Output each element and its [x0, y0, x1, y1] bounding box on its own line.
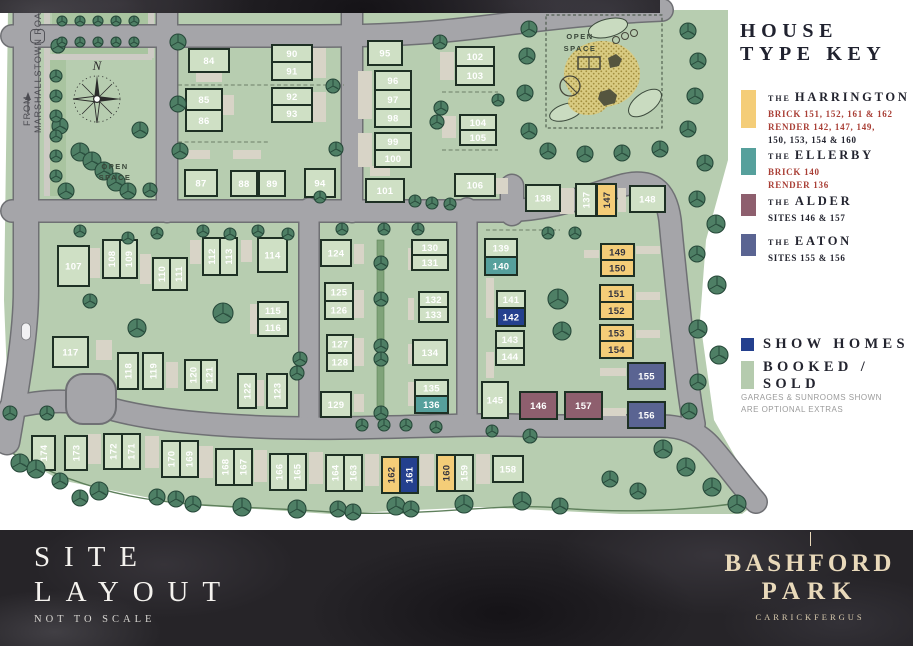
plot-155: 155	[628, 363, 665, 389]
top-texture-bar	[0, 0, 660, 13]
svg-text:168: 168	[220, 459, 231, 476]
tree-icon	[129, 37, 139, 47]
tree-icon	[172, 143, 188, 159]
svg-text:164: 164	[330, 464, 341, 481]
plot-132: 132	[419, 292, 448, 307]
tree-icon	[40, 406, 54, 420]
tree-icon	[517, 85, 533, 101]
svg-text:161: 161	[404, 466, 415, 483]
plot-143: 143	[496, 331, 524, 348]
legend-entry-harrington: THEHARRINGTONBRICK 151, 152, 161 & 162RE…	[741, 88, 910, 145]
plot-163: 163	[344, 455, 362, 491]
tree-icon	[185, 496, 201, 512]
svg-text:94: 94	[314, 178, 326, 189]
tree-icon	[90, 482, 108, 500]
tree-icon	[697, 155, 713, 171]
plot-114: 114	[258, 238, 287, 272]
legend-show-homes: SHOW HOMES	[741, 336, 909, 353]
plot-102: 102	[456, 47, 494, 66]
tree-icon	[690, 53, 706, 69]
tree-icon	[74, 225, 86, 237]
svg-text:141: 141	[503, 295, 520, 306]
plot-96: 96	[375, 71, 411, 90]
tree-icon	[521, 123, 537, 139]
svg-text:149: 149	[609, 247, 626, 258]
plot-107: 107	[58, 246, 89, 286]
road-island-marking	[22, 323, 31, 340]
footer: SITE LAYOUT NOT TO SCALE BASHFORD PARK C…	[0, 530, 913, 646]
svg-text:136: 136	[423, 400, 440, 411]
svg-text:172: 172	[108, 443, 119, 460]
tree-icon	[387, 497, 405, 515]
tree-icon	[374, 256, 388, 270]
plot-127: 127	[327, 335, 353, 353]
open-space-right-label: OPEN	[566, 32, 593, 41]
tree-icon	[681, 403, 697, 419]
tree-icon	[374, 339, 388, 353]
tree-icon	[378, 419, 390, 431]
plot-110: 110	[153, 258, 170, 290]
tree-icon	[708, 276, 726, 294]
tree-icon	[128, 319, 146, 337]
plot-167: 167	[234, 449, 252, 485]
svg-text:163: 163	[348, 465, 359, 482]
plot-120: 120	[185, 360, 201, 390]
svg-text:131: 131	[422, 258, 439, 269]
svg-text:159: 159	[459, 465, 470, 482]
svg-text:86: 86	[198, 116, 209, 127]
plot-172: 172	[104, 434, 122, 469]
plot-130: 130	[412, 240, 448, 255]
plot-108: 108	[103, 240, 120, 278]
svg-text:120: 120	[188, 367, 199, 384]
svg-text:87: 87	[195, 178, 206, 189]
plot-88: 88	[231, 171, 257, 196]
alder-swatch	[741, 194, 756, 216]
svg-text:104: 104	[470, 118, 487, 129]
plot-149: 149	[601, 244, 634, 260]
tree-icon	[654, 440, 672, 458]
tree-icon	[288, 500, 306, 518]
plot-125: 125	[325, 283, 353, 301]
plot-162: 162	[382, 457, 400, 493]
tree-icon	[492, 94, 504, 106]
tree-icon	[129, 16, 139, 26]
svg-text:117: 117	[62, 347, 78, 358]
house-type-key-panel: HOUSE TYPE KEY THEHARRINGTONBRICK 151, 1…	[728, 0, 913, 530]
svg-text:134: 134	[422, 348, 439, 359]
plot-161: 161	[400, 457, 418, 493]
tree-icon	[72, 490, 88, 506]
plot-113: 113	[220, 238, 237, 275]
svg-text:128: 128	[332, 357, 349, 368]
plot-106: 106	[455, 174, 495, 196]
svg-text:139: 139	[493, 243, 510, 254]
site-layout-page: 8485868788899091929394959697989910010110…	[0, 0, 913, 646]
plot-92: 92	[272, 88, 312, 105]
svg-text:142: 142	[503, 312, 520, 323]
plot-171: 171	[122, 434, 140, 469]
show-homes-swatch	[741, 338, 754, 351]
plot-123: 123	[267, 374, 287, 408]
tree-icon	[50, 110, 62, 122]
not-to-scale-label: NOT TO SCALE	[34, 614, 234, 625]
svg-text:116: 116	[265, 323, 281, 334]
svg-text:138: 138	[535, 193, 552, 204]
plot-101: 101	[366, 179, 404, 202]
tree-icon	[602, 471, 618, 487]
plot-86: 86	[186, 110, 222, 131]
svg-text:92: 92	[286, 92, 297, 103]
svg-text:147: 147	[602, 192, 613, 209]
plot-93: 93	[272, 105, 312, 122]
plot-153: 153	[600, 325, 633, 341]
plot-109: 109	[120, 240, 137, 278]
tree-icon	[374, 292, 388, 306]
svg-text:125: 125	[331, 287, 348, 298]
tree-icon	[444, 198, 456, 210]
svg-text:167: 167	[238, 459, 249, 476]
house-type-name: THEELLERBY	[768, 146, 874, 164]
plot-157: 157	[565, 392, 602, 419]
tree-icon	[569, 227, 581, 239]
plot-145: 145	[482, 382, 508, 418]
open-space-left-label2: SPACE	[99, 173, 132, 182]
svg-text:119: 119	[148, 363, 159, 379]
brand-name-2: PARK	[720, 578, 900, 606]
legend-booked-sold: BOOKED / SOLD	[741, 359, 909, 393]
svg-text:85: 85	[198, 95, 210, 106]
tree-icon	[233, 498, 251, 516]
plot-131: 131	[412, 255, 448, 270]
tree-icon	[652, 141, 668, 157]
svg-text:113: 113	[224, 248, 235, 264]
legend-entry-ellerby: THEELLERBYBRICK 140RENDER 136	[741, 146, 874, 190]
tree-icon	[521, 21, 537, 37]
tree-icon	[93, 16, 103, 26]
tree-icon	[378, 223, 390, 235]
tree-icon	[93, 37, 103, 47]
plot-121: 121	[201, 360, 217, 390]
plot-136: 136	[415, 396, 448, 413]
svg-text:89: 89	[266, 179, 277, 190]
svg-text:109: 109	[124, 251, 135, 268]
svg-text:148: 148	[639, 194, 656, 205]
house-type-sites: 150, 153, 154 & 160	[768, 135, 910, 145]
svg-text:151: 151	[608, 289, 625, 300]
tree-icon	[329, 142, 343, 156]
compass-north-label: N	[92, 58, 103, 73]
plot-146: 146	[520, 392, 557, 419]
svg-text:174: 174	[39, 444, 50, 461]
tree-icon	[430, 115, 444, 129]
plot-98: 98	[375, 109, 411, 127]
plot-119: 119	[143, 353, 163, 389]
svg-text:173: 173	[71, 445, 82, 462]
svg-text:156: 156	[638, 410, 655, 421]
svg-text:84: 84	[203, 56, 215, 67]
tree-icon	[689, 191, 705, 207]
plot-122: 122	[238, 374, 256, 408]
tree-icon	[400, 419, 412, 431]
from-label: FROM	[22, 96, 32, 127]
tree-icon	[433, 35, 447, 49]
open-space-right-label2: SPACE	[564, 44, 597, 53]
tree-icon	[50, 90, 62, 102]
svg-text:90: 90	[286, 49, 297, 60]
plot-134: 134	[413, 340, 447, 365]
plot-116: 116	[258, 319, 288, 336]
tree-icon	[542, 227, 554, 239]
svg-text:122: 122	[242, 383, 253, 400]
svg-text:115: 115	[265, 306, 282, 317]
svg-text:106: 106	[467, 180, 484, 191]
plot-104: 104	[460, 115, 496, 130]
tree-icon	[75, 37, 85, 47]
house-type-name: THEALDER	[768, 192, 852, 210]
svg-text:132: 132	[425, 295, 442, 306]
plot-148: 148	[630, 186, 665, 212]
tree-icon	[689, 246, 705, 262]
plot-117: 117	[53, 337, 88, 367]
svg-text:91: 91	[286, 66, 298, 77]
plot-156: 156	[628, 402, 665, 428]
tree-icon	[149, 489, 165, 505]
svg-text:126: 126	[331, 305, 348, 316]
plot-87: 87	[185, 170, 217, 196]
svg-text:102: 102	[467, 52, 484, 63]
svg-text:137: 137	[581, 192, 592, 209]
plot-164: 164	[326, 455, 344, 491]
tree-icon	[122, 232, 134, 244]
tree-icon	[577, 146, 593, 162]
plot-138: 138	[526, 185, 560, 211]
tree-icon	[52, 473, 68, 489]
tree-icon	[50, 70, 62, 82]
tree-icon	[677, 458, 695, 476]
plot-141: 141	[497, 291, 525, 308]
plot-129: 129	[321, 392, 351, 417]
svg-text:127: 127	[332, 339, 349, 350]
plot-100: 100	[375, 150, 411, 167]
svg-text:155: 155	[638, 371, 655, 382]
svg-text:165: 165	[292, 463, 303, 480]
svg-text:108: 108	[107, 251, 118, 268]
svg-text:101: 101	[377, 186, 394, 197]
site-layout-title: SITE LAYOUT	[34, 540, 234, 610]
plot-84: 84	[189, 49, 229, 72]
svg-text:130: 130	[422, 243, 439, 254]
brand-tick	[810, 532, 811, 546]
tree-icon	[687, 88, 703, 104]
svg-text:157: 157	[575, 401, 592, 412]
svg-text:146: 146	[530, 401, 547, 412]
plot-89: 89	[259, 171, 285, 196]
plot-150: 150	[601, 260, 634, 276]
plot-85: 85	[186, 89, 222, 110]
plot-137: 137	[576, 184, 596, 216]
tree-icon	[132, 122, 148, 138]
tree-icon	[426, 197, 438, 209]
svg-text:129: 129	[328, 400, 345, 411]
tree-icon	[707, 215, 725, 233]
svg-text:118: 118	[123, 363, 134, 379]
plot-133: 133	[419, 307, 448, 322]
house-type-name: THEEATON	[768, 232, 852, 250]
plot-115: 115	[258, 302, 288, 319]
tree-icon	[282, 228, 294, 240]
tree-icon	[213, 303, 233, 323]
svg-text:103: 103	[467, 71, 484, 82]
tree-icon	[50, 130, 62, 142]
tree-icon	[224, 228, 236, 240]
tree-icon	[523, 429, 537, 443]
tree-icon	[57, 16, 67, 26]
tree-icon	[111, 37, 121, 47]
plot-90: 90	[272, 45, 312, 62]
svg-text:152: 152	[608, 306, 625, 317]
tree-icon	[290, 366, 304, 380]
tree-icon	[409, 195, 421, 207]
house-type-name: THEHARRINGTON	[768, 88, 910, 106]
svg-text:97: 97	[387, 95, 398, 106]
tree-icon	[710, 346, 728, 364]
tree-icon	[170, 96, 186, 112]
plot-154: 154	[600, 341, 633, 358]
plot-173: 173	[65, 436, 87, 470]
svg-text:124: 124	[328, 248, 345, 259]
plot-152: 152	[600, 302, 633, 319]
svg-text:158: 158	[500, 464, 517, 475]
booked-label: BOOKED / SOLD	[763, 359, 909, 393]
tree-icon	[120, 183, 136, 199]
svg-text:169: 169	[184, 451, 195, 468]
plot-168: 168	[216, 449, 234, 485]
svg-text:153: 153	[608, 328, 625, 339]
plot-91: 91	[272, 62, 312, 80]
road-name-label: MARSHALLSTOWN ROAD	[33, 5, 43, 133]
svg-text:143: 143	[502, 335, 519, 346]
tree-icon	[151, 227, 163, 239]
plot-118: 118	[118, 353, 138, 389]
house-type-sites: SITES 146 & 157	[768, 213, 852, 223]
tree-icon	[314, 191, 326, 203]
footer-title-block: SITE LAYOUT NOT TO SCALE	[34, 540, 234, 625]
plot-105: 105	[460, 130, 496, 145]
tree-icon	[548, 289, 568, 309]
eaton-swatch	[741, 234, 756, 256]
svg-text:114: 114	[264, 250, 281, 261]
tree-icon	[614, 145, 630, 161]
plot-140: 140	[485, 257, 517, 275]
tree-icon	[540, 143, 556, 159]
tree-icon	[50, 150, 62, 162]
legend-note: GARAGES & SUNROOMS SHOWN ARE OPTIONAL EX…	[741, 392, 882, 416]
legend-entry-alder: THEALDERSITES 146 & 157	[741, 192, 852, 223]
house-type-sites: RENDER 142, 147, 149,	[768, 122, 910, 132]
tree-icon	[486, 425, 498, 437]
svg-text:95: 95	[379, 48, 391, 59]
plot-139: 139	[485, 239, 517, 257]
plot-128: 128	[327, 353, 353, 371]
svg-text:105: 105	[470, 133, 487, 144]
tree-icon	[197, 225, 209, 237]
plot-147: 147	[597, 184, 616, 216]
plot-144: 144	[496, 348, 524, 365]
tree-icon	[326, 79, 340, 93]
plot-103: 103	[456, 66, 494, 85]
tree-icon	[553, 322, 571, 340]
svg-text:112: 112	[207, 248, 218, 264]
tree-icon	[252, 225, 264, 237]
tree-icon	[11, 454, 29, 472]
plot-159: 159	[455, 455, 473, 491]
plot-112: 112	[203, 238, 220, 275]
tree-icon	[513, 492, 531, 510]
tree-icon	[680, 121, 696, 137]
tree-icon	[630, 483, 646, 499]
plot-111: 111	[170, 258, 187, 290]
svg-text:150: 150	[609, 263, 626, 274]
open-space-left-label: OPEN	[101, 162, 128, 171]
brand-name-1: BASHFORD	[720, 550, 900, 578]
brand-logo: BASHFORD PARK CARRICKFERGUS	[720, 532, 900, 622]
tree-icon	[168, 491, 184, 507]
tree-icon	[689, 320, 707, 338]
tree-icon	[75, 16, 85, 26]
svg-text:107: 107	[65, 261, 82, 272]
tree-icon	[50, 170, 62, 182]
plot-99: 99	[375, 133, 411, 150]
show-homes-label: SHOW HOMES	[763, 336, 909, 353]
plot-165: 165	[288, 454, 306, 490]
house-type-sites: RENDER 136	[768, 180, 874, 190]
tree-icon	[330, 501, 346, 517]
tree-icon	[57, 37, 67, 47]
svg-text:160: 160	[441, 465, 452, 482]
plot-135: 135	[415, 380, 448, 396]
tree-icon	[111, 16, 121, 26]
plot-170: 170	[162, 441, 180, 477]
tree-icon	[455, 495, 473, 513]
tree-icon	[680, 23, 696, 39]
svg-text:96: 96	[387, 76, 398, 87]
svg-text:162: 162	[386, 467, 397, 484]
plot-97: 97	[375, 90, 411, 109]
tree-icon	[374, 406, 388, 420]
svg-text:121: 121	[204, 366, 215, 383]
booked-sold-swatch	[741, 361, 754, 389]
svg-text:133: 133	[425, 310, 442, 321]
svg-text:145: 145	[487, 395, 504, 406]
svg-text:93: 93	[286, 109, 297, 120]
plot-158: 158	[493, 456, 523, 482]
tree-icon	[552, 498, 568, 514]
house-type-sites: BRICK 140	[768, 167, 874, 177]
plot-95: 95	[368, 41, 402, 65]
plot-166: 166	[270, 454, 288, 490]
house-type-sites: BRICK 151, 152, 161 & 162	[768, 109, 910, 119]
plot-126: 126	[325, 301, 353, 319]
tree-icon	[519, 48, 535, 64]
tree-icon	[703, 478, 721, 496]
tree-icon	[345, 504, 361, 520]
tree-icon	[170, 34, 186, 50]
turning-head	[66, 374, 116, 424]
svg-text:154: 154	[608, 345, 625, 356]
legend-entry-eaton: THEEATONSITES 155 & 156	[741, 232, 852, 263]
plot-124: 124	[321, 240, 351, 266]
